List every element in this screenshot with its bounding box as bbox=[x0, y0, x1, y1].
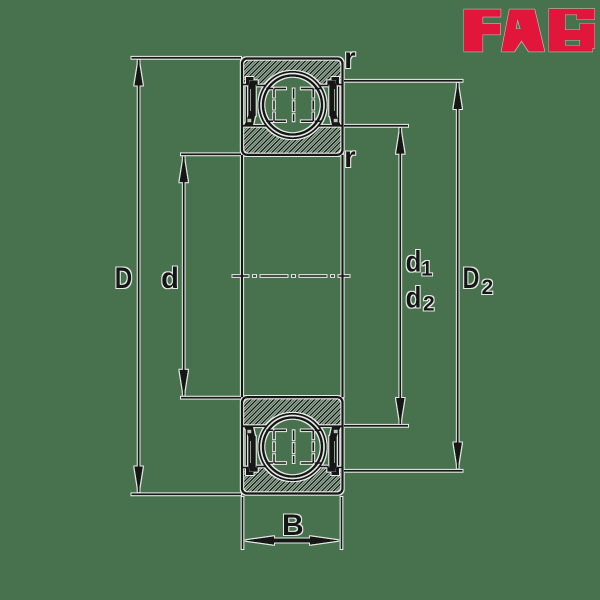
svg-text:2: 2 bbox=[482, 276, 494, 299]
svg-text:D: D bbox=[115, 262, 133, 295]
svg-text:r: r bbox=[344, 42, 356, 75]
svg-text:2: 2 bbox=[423, 293, 435, 316]
svg-text:1: 1 bbox=[421, 258, 433, 281]
svg-text:B: B bbox=[282, 509, 304, 542]
svg-text:d: d bbox=[406, 282, 422, 315]
svg-text:d: d bbox=[406, 246, 422, 279]
svg-text:r: r bbox=[344, 141, 356, 174]
svg-text:D: D bbox=[463, 262, 480, 295]
svg-text:d: d bbox=[161, 262, 179, 295]
